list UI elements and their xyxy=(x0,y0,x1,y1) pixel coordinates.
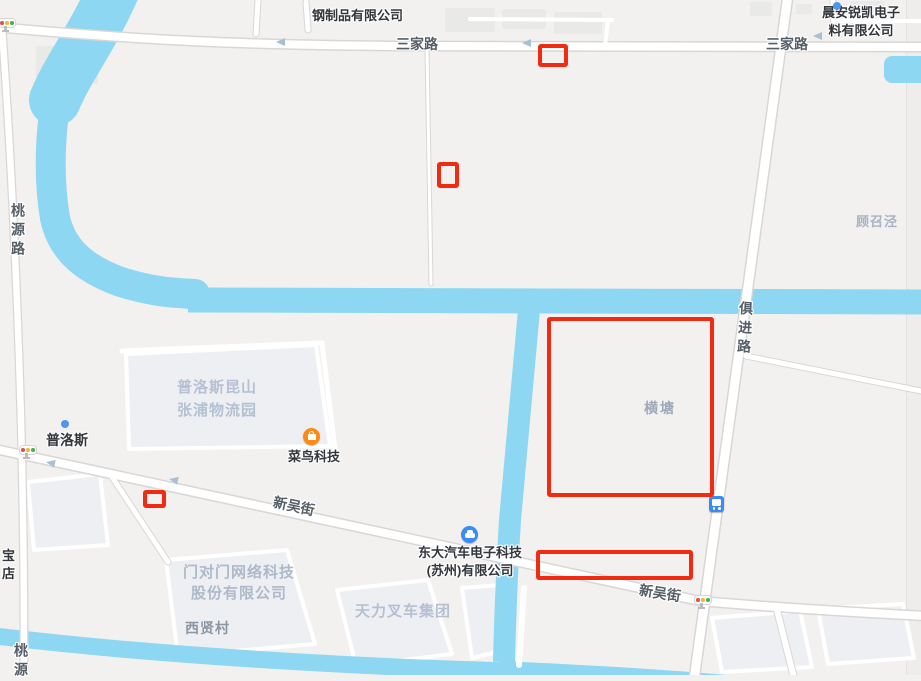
area-label-guzhaojing: 顾召泾 xyxy=(856,211,898,230)
traffic-light-icon xyxy=(19,445,37,455)
poi-label-bao-line2: 店 xyxy=(2,565,15,583)
annotation-box-1 xyxy=(538,44,568,67)
bus-light-glyph xyxy=(713,507,716,510)
road-direction-arrow-icon xyxy=(45,458,55,468)
poi-label-chenan[interactable]: 晨安锐凯电子 料有限公司 xyxy=(822,4,900,40)
poi-marker-dot-chenan[interactable] xyxy=(833,2,841,10)
car-body-glyph xyxy=(465,533,475,538)
road-direction-arrow-icon xyxy=(168,475,178,485)
road-label-jujinlu: 俱进路 xyxy=(734,301,757,359)
poi-label-bao-partial[interactable]: 宝 店 xyxy=(2,547,15,583)
map-screenshot: { "colors": { "land": "#f2f1ef", "water"… xyxy=(0,0,921,675)
traffic-light-icon xyxy=(694,595,712,605)
bus-window-glyph xyxy=(712,499,721,506)
poi-label-steel-company[interactable]: 钢制品有限公司 xyxy=(312,5,403,24)
poi-marker-dot-prologis[interactable] xyxy=(61,420,69,428)
poi-label-bao-line1: 宝 xyxy=(2,547,15,565)
road-label-sanjialu-east: 三家路 xyxy=(766,34,808,54)
area-label-xixiancun: 西贤村 xyxy=(185,618,230,638)
road-direction-arrow-icon xyxy=(276,38,285,46)
poi-label-dongda-line1: 东大汽车电子科技 xyxy=(418,544,522,562)
annotation-box-4 xyxy=(143,490,166,508)
road-label-taoyuan-partial: 桃源 xyxy=(11,643,31,681)
annotation-box-5 xyxy=(536,550,693,580)
poi-label-chenan-line2: 料有限公司 xyxy=(822,22,900,40)
area-label-menduimen-line1: 门对门网络科技 xyxy=(183,562,295,583)
bag-body-glyph xyxy=(308,434,316,440)
water-pond xyxy=(884,56,921,83)
car-icon[interactable] xyxy=(461,526,478,543)
road-direction-arrow-icon xyxy=(522,39,531,47)
road-label-taoyuanlu: 桃源路 xyxy=(8,203,28,260)
road-label-sanjialu-west: 三家路 xyxy=(396,34,438,54)
annotation-box-2 xyxy=(437,162,459,188)
bus-stop-icon[interactable] xyxy=(709,496,724,512)
area-label-prologis-park-line2: 张浦物流园 xyxy=(177,399,257,422)
poi-label-dongda[interactable]: 东大汽车电子科技 (苏州)有限公司 xyxy=(418,544,522,580)
shopping-bag-icon[interactable] xyxy=(303,428,320,445)
area-label-prologis-park: 普洛斯昆山 张浦物流园 xyxy=(177,376,257,422)
area-label-prologis-park-line1: 普洛斯昆山 xyxy=(177,376,257,399)
poi-label-cainiao[interactable]: 菜鸟科技 xyxy=(288,446,340,465)
poi-label-prologis[interactable]: 普洛斯 xyxy=(46,430,88,450)
bus-light-glyph xyxy=(718,507,721,510)
traffic-light-icon xyxy=(0,18,16,28)
area-label-menduimen-line2: 股份有限公司 xyxy=(183,583,295,604)
poi-label-dongda-line2: (苏州)有限公司 xyxy=(418,562,522,580)
road-direction-arrow-icon xyxy=(813,32,822,40)
area-label-tianli: 天力叉车集团 xyxy=(355,600,451,621)
area-label-menduimen: 门对门网络科技 股份有限公司 xyxy=(183,562,295,604)
annotation-box-3 xyxy=(547,317,714,497)
